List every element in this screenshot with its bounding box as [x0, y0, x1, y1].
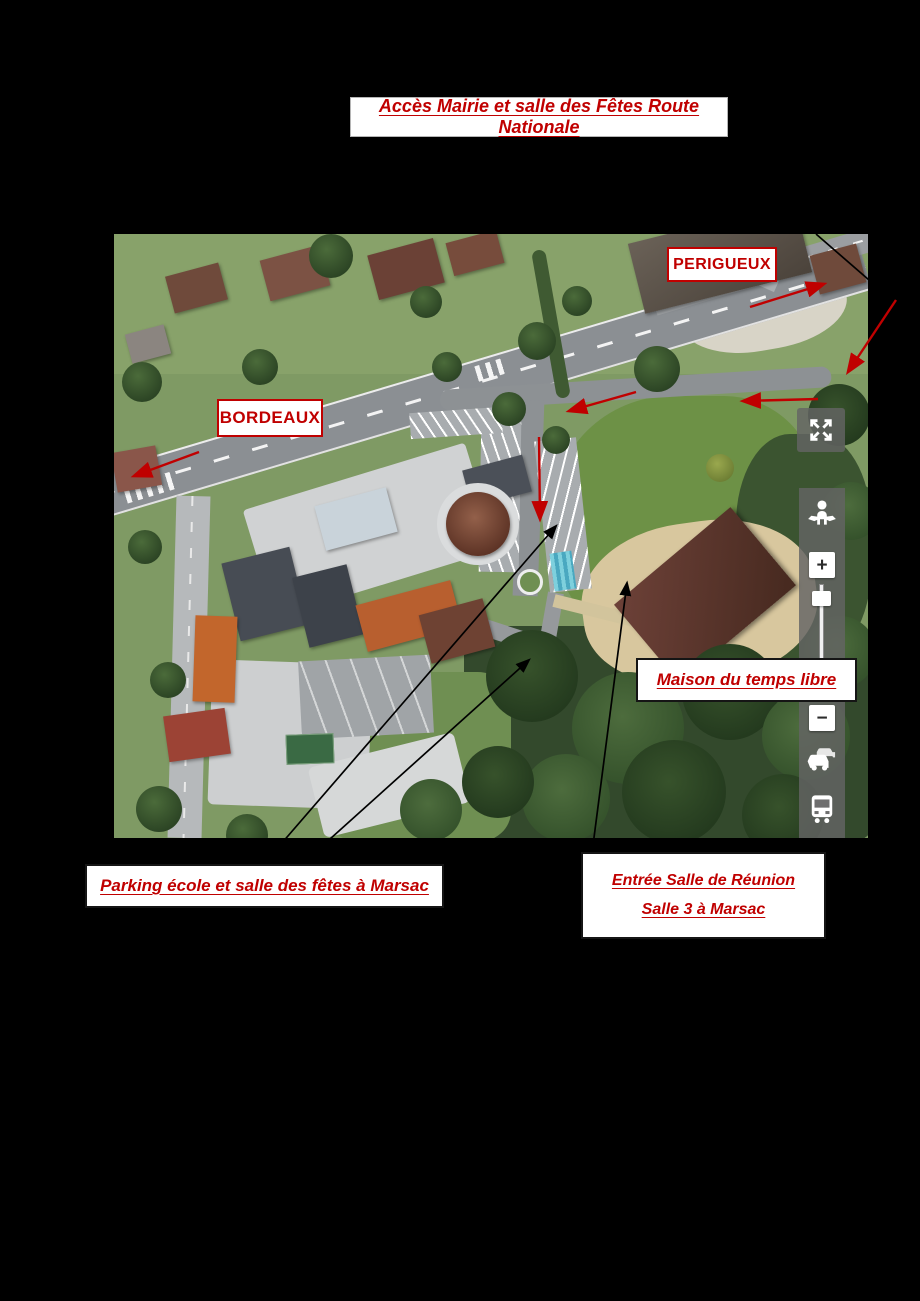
tree — [309, 234, 353, 278]
tree — [634, 346, 680, 392]
fullscreen-icon — [806, 416, 836, 444]
tree — [432, 352, 462, 382]
perigueux-label: PERIGUEUX — [673, 256, 771, 274]
forest-canopy — [522, 754, 610, 838]
zoom-slider-handle[interactable] — [812, 591, 831, 606]
tree — [136, 786, 182, 832]
maison-label: Maison du temps libre — [657, 670, 836, 690]
fullscreen-button[interactable] — [797, 408, 845, 452]
zoom-out-button[interactable]: − — [809, 705, 835, 731]
zoom-in-label: + — [816, 556, 827, 575]
entree-callout-line2: Salle 3 à Marsac — [642, 901, 766, 919]
forest-canopy — [400, 779, 462, 838]
forest-canopy — [486, 630, 578, 722]
parking-callout: Parking école et salle des fêtes à Marsa… — [100, 876, 429, 896]
zoom-in-button[interactable]: + — [809, 552, 835, 578]
tree — [492, 392, 526, 426]
court-markings — [298, 655, 434, 740]
building — [193, 615, 238, 702]
forest-canopy — [462, 746, 534, 818]
tree — [706, 454, 734, 482]
bordeaux-label: BORDEAUX — [220, 408, 321, 428]
traffic-button[interactable] — [804, 743, 840, 777]
tree — [542, 426, 570, 454]
street-dashes — [183, 496, 194, 838]
school-courtyard — [298, 655, 434, 740]
traffic-car-icon — [805, 747, 839, 773]
sports-court — [285, 733, 334, 765]
aerial-map[interactable]: + − — [114, 234, 868, 838]
title-box: Accès Mairie et salle des Fêtes Route Na… — [350, 97, 728, 137]
tree — [226, 814, 268, 838]
maison-label-box: Maison du temps libre — [636, 658, 857, 702]
building — [163, 708, 231, 762]
entree-callout-line1: Entrée Salle de Réunion — [612, 872, 795, 890]
tree — [150, 662, 186, 698]
forest-canopy — [622, 740, 726, 838]
zoom-out-label: − — [816, 709, 827, 728]
page: Accès Mairie et salle des Fêtes Route Na… — [0, 0, 920, 1301]
transit-button[interactable] — [805, 791, 839, 827]
tree — [128, 530, 162, 564]
tree — [410, 286, 442, 318]
street-view-pegman-icon — [806, 499, 838, 539]
transit-bus-icon — [808, 794, 836, 824]
mini-roundabout — [517, 569, 543, 595]
parking-callout-box: Parking école et salle des fêtes à Marsa… — [85, 864, 444, 908]
bordeaux-label-box: BORDEAUX — [217, 399, 323, 437]
rotunda-building — [446, 492, 510, 556]
tree — [562, 286, 592, 316]
entree-callout-box: Entrée Salle de Réunion Salle 3 à Marsac — [581, 852, 826, 939]
tree — [122, 362, 162, 402]
tree — [242, 349, 278, 385]
perigueux-label-box: PERIGUEUX — [667, 247, 777, 282]
tree — [518, 322, 556, 360]
page-title: Accès Mairie et salle des Fêtes Route Na… — [351, 96, 727, 138]
building — [114, 445, 162, 492]
pegman-button[interactable] — [803, 496, 841, 542]
